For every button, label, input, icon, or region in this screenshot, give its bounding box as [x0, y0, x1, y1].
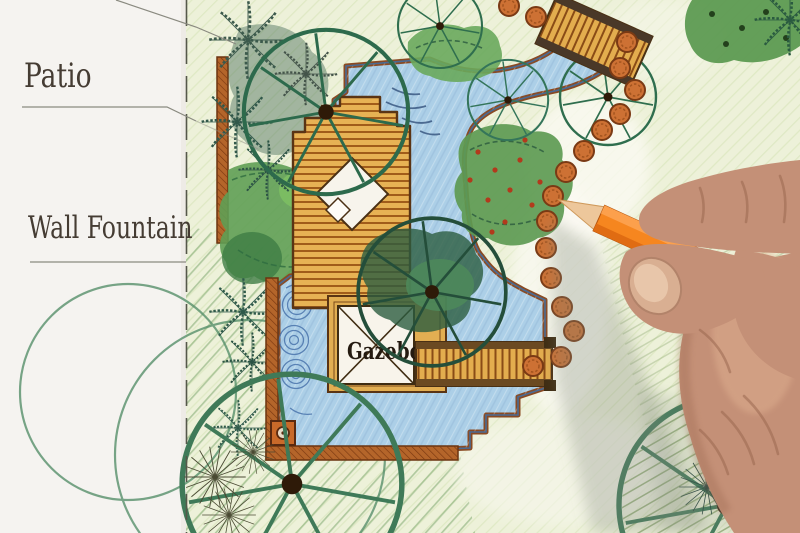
stepping-stone: [610, 104, 630, 124]
plan-illustration: Gazebo: [0, 0, 800, 533]
stepping-stone: [574, 141, 594, 161]
stepping-stone: [556, 162, 576, 182]
shrub-top-right: [685, 0, 800, 63]
stepping-stone: [625, 80, 645, 100]
stepping-stone: [543, 186, 563, 206]
stepping-stone: [523, 356, 543, 376]
stepping-stone: [610, 58, 630, 78]
stepping-stone: [526, 7, 546, 27]
stepping-stone: [592, 120, 612, 140]
landscape-plan-photo: Gazebo: [0, 0, 800, 533]
stepping-stone: [617, 32, 637, 52]
wall-fountain-label: Wall Fountain: [28, 210, 192, 246]
patio-label: Patio: [24, 57, 92, 96]
stepping-stone: [499, 0, 519, 16]
